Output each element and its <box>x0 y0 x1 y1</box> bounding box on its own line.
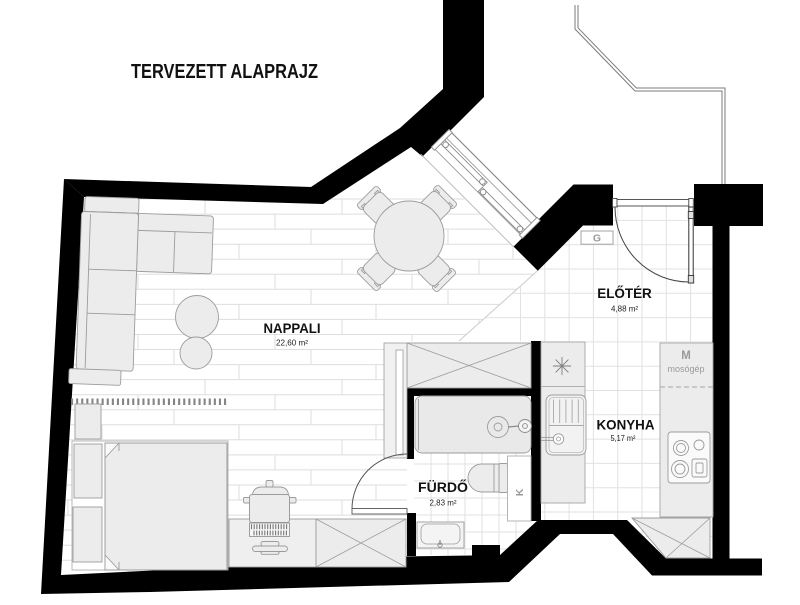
svg-text:K: K <box>514 488 526 496</box>
svg-text:2,83 m²: 2,83 m² <box>430 499 457 508</box>
svg-text:4,88 m²: 4,88 m² <box>611 305 638 314</box>
svg-text:22,60 m²: 22,60 m² <box>276 339 308 348</box>
svg-text:KONYHA: KONYHA <box>597 418 655 433</box>
svg-text:ELŐTÉR: ELŐTÉR <box>597 286 652 301</box>
svg-text:5,17 m²: 5,17 m² <box>611 434 636 443</box>
svg-text:G: G <box>593 233 601 245</box>
svg-text:mosógép: mosógép <box>667 364 704 374</box>
svg-text:NAPPALI: NAPPALI <box>264 321 321 336</box>
svg-text:FÜRDŐ: FÜRDŐ <box>418 480 468 495</box>
svg-text:M: M <box>681 350 691 362</box>
svg-text:TERVEZETT ALAPRAJZ: TERVEZETT ALAPRAJZ <box>131 60 318 83</box>
